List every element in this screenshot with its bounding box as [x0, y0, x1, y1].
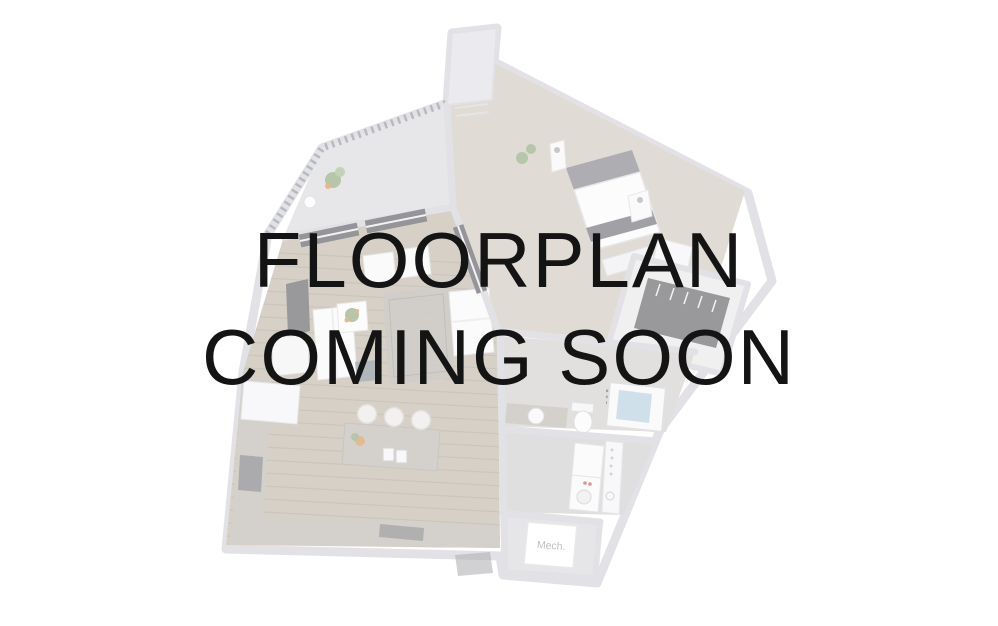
kitchen-sink [383, 448, 394, 461]
bar-stool [385, 408, 404, 427]
overlay-line-2: COMING SOON [0, 309, 998, 406]
floorplan-placeholder-card: Mech. FLOORPLAN COMING SOON [0, 0, 998, 626]
balcony-table [304, 196, 316, 208]
kitchen-island [342, 423, 440, 471]
vanity-sink [528, 408, 544, 424]
washer [572, 443, 604, 478]
bar-cart [455, 552, 493, 576]
mech-room-label: Mech. [537, 539, 566, 553]
coming-soon-overlay: FLOORPLAN COMING SOON [0, 212, 998, 406]
bar-stool [412, 411, 431, 430]
utility-panel [602, 441, 623, 514]
nightstand [550, 140, 566, 172]
oven [238, 455, 263, 492]
dryer-door [577, 490, 591, 504]
bar-stool [358, 405, 377, 424]
overlay-line-1: FLOORPLAN [0, 212, 998, 309]
